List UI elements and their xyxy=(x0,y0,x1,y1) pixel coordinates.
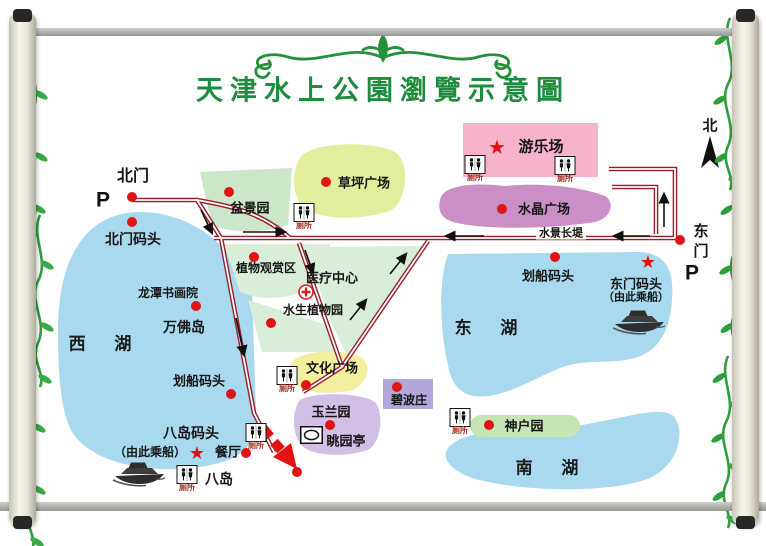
label-medical-center: 医疗中心 xyxy=(306,272,358,285)
toilet-label: 厕所 xyxy=(467,174,483,183)
label-eight-island-dock: 八岛码头 xyxy=(163,426,219,440)
scroll-map-poster: 天津水上公園瀏覽示意圖 北门 P 北门码头 盆景园 草坪广场 游乐场 水晶广场 … xyxy=(0,0,766,546)
scroll-top-bar xyxy=(24,28,742,36)
scroll-bottom-bar xyxy=(0,502,766,511)
flourish-ornament xyxy=(256,36,510,78)
label-eight-island: 八岛 xyxy=(205,472,233,486)
label-bibo-villa: 碧波庄 xyxy=(391,394,427,406)
toilet-icon xyxy=(465,155,486,174)
scroll-rod-right xyxy=(732,12,759,526)
toilet-culture-plaza: 厕所 xyxy=(277,366,298,394)
boat-icon xyxy=(112,458,168,488)
toilet-icon xyxy=(177,465,198,484)
parking-icon-east: P xyxy=(685,263,699,284)
pavilion-icon xyxy=(300,426,323,444)
label-kobe-garden: 神户园 xyxy=(504,420,543,433)
label-crystal-plaza: 水晶广场 xyxy=(518,203,570,216)
poi-dot-bibo xyxy=(392,382,402,392)
poi-dot-dock-east xyxy=(550,252,560,262)
rod-cap xyxy=(13,516,32,529)
label-boat-dock-east: 划船码头 xyxy=(522,270,574,283)
label-board-here-west: （由此乘船） xyxy=(114,446,186,458)
toilet-kobe: 厕所 xyxy=(450,408,471,436)
poi-dot-dock-west xyxy=(226,389,236,399)
toilet-icon xyxy=(450,408,471,427)
boat-icon xyxy=(612,306,668,336)
toilet-restaurant: 厕所 xyxy=(246,423,267,451)
poi-dot-plant-view xyxy=(249,252,259,262)
toilet-label: 厕所 xyxy=(557,175,573,184)
label-magnolia-garden: 玉兰园 xyxy=(311,406,350,419)
medical-cross-icon xyxy=(298,284,314,300)
toilet-amusement-2: 厕所 xyxy=(555,156,576,184)
poi-dot-bonsai xyxy=(224,187,234,197)
rod-cap xyxy=(736,516,755,529)
poi-dot-north-gate xyxy=(127,192,137,202)
label-west-lake: 西 湖 xyxy=(69,336,144,353)
toilet-eight-island: 厕所 xyxy=(177,465,198,493)
toilet-label: 厕所 xyxy=(452,427,468,436)
rod-cap xyxy=(13,9,32,22)
star-eight-island-dock: ★ xyxy=(189,444,205,462)
star-east-gate-dock: ★ xyxy=(640,253,656,271)
toilet-label: 厕所 xyxy=(279,385,295,394)
label-north-dock: 北门码头 xyxy=(105,232,161,246)
scroll-rod-left xyxy=(9,12,36,526)
label-waterscape-causeway: 水景长堤 xyxy=(536,229,586,240)
toilet-icon xyxy=(246,423,267,442)
poi-dot-longtan xyxy=(191,301,201,311)
toilet-label: 厕所 xyxy=(296,222,312,231)
label-east-gate-dock: 东门码头 xyxy=(610,278,662,291)
label-north-gate: 北门 xyxy=(117,169,149,185)
star-amusement-park: ★ xyxy=(488,138,506,158)
label-boat-dock-west: 划船码头 xyxy=(173,375,225,388)
compass-arrow xyxy=(701,136,719,168)
rod-cap xyxy=(736,9,755,22)
poi-dot-crystal xyxy=(497,204,507,214)
poi-dot-culture xyxy=(301,380,311,390)
poi-dot-route-end xyxy=(292,467,302,477)
label-restaurant: 餐厅 xyxy=(215,446,241,459)
toilet-label: 厕所 xyxy=(248,442,264,451)
label-tiaoyuan-pavilion: 眺园亭 xyxy=(326,435,365,448)
toilet-bonsai: 厕所 xyxy=(294,203,315,231)
poi-dot-magnolia xyxy=(325,420,335,430)
poi-dot-lawn xyxy=(321,177,331,187)
toilet-icon xyxy=(277,366,298,385)
boat-eight-island xyxy=(112,458,168,488)
toilet-icon xyxy=(555,156,576,175)
label-wanfo-island: 万佛岛 xyxy=(163,320,205,334)
label-south-lake: 南 湖 xyxy=(516,460,591,477)
label-board-here-east: （由此乘船） xyxy=(603,293,669,304)
toilet-amusement-1: 厕所 xyxy=(465,155,486,183)
poi-dot-east-gate xyxy=(675,235,685,245)
poi-dot-kobe xyxy=(484,420,494,430)
label-plant-viewing-area: 植物观赏区 xyxy=(236,262,296,274)
parking-icon-west: P xyxy=(96,190,110,211)
compass-north-label: 北 xyxy=(702,119,717,134)
poi-dot-north-dock xyxy=(127,217,137,227)
label-east-lake: 东 湖 xyxy=(455,320,530,337)
label-east-gate: 东门 xyxy=(693,223,708,263)
label-longtan-academy: 龙潭书画院 xyxy=(138,287,198,299)
toilet-label: 厕所 xyxy=(179,484,195,493)
label-lawn-plaza: 草坪广场 xyxy=(338,177,390,190)
toilet-icon xyxy=(294,203,315,222)
label-culture-plaza: 文化广场 xyxy=(306,362,358,375)
page-title: 天津水上公園瀏覽示意圖 xyxy=(196,78,570,105)
boat-east-gate-dock xyxy=(612,306,668,336)
label-aquatic-garden: 水生植物园 xyxy=(283,304,343,316)
label-bonsai-garden: 盆景园 xyxy=(230,202,269,215)
label-amusement-park: 游乐场 xyxy=(518,140,563,155)
poi-dot-aquatic xyxy=(266,318,276,328)
